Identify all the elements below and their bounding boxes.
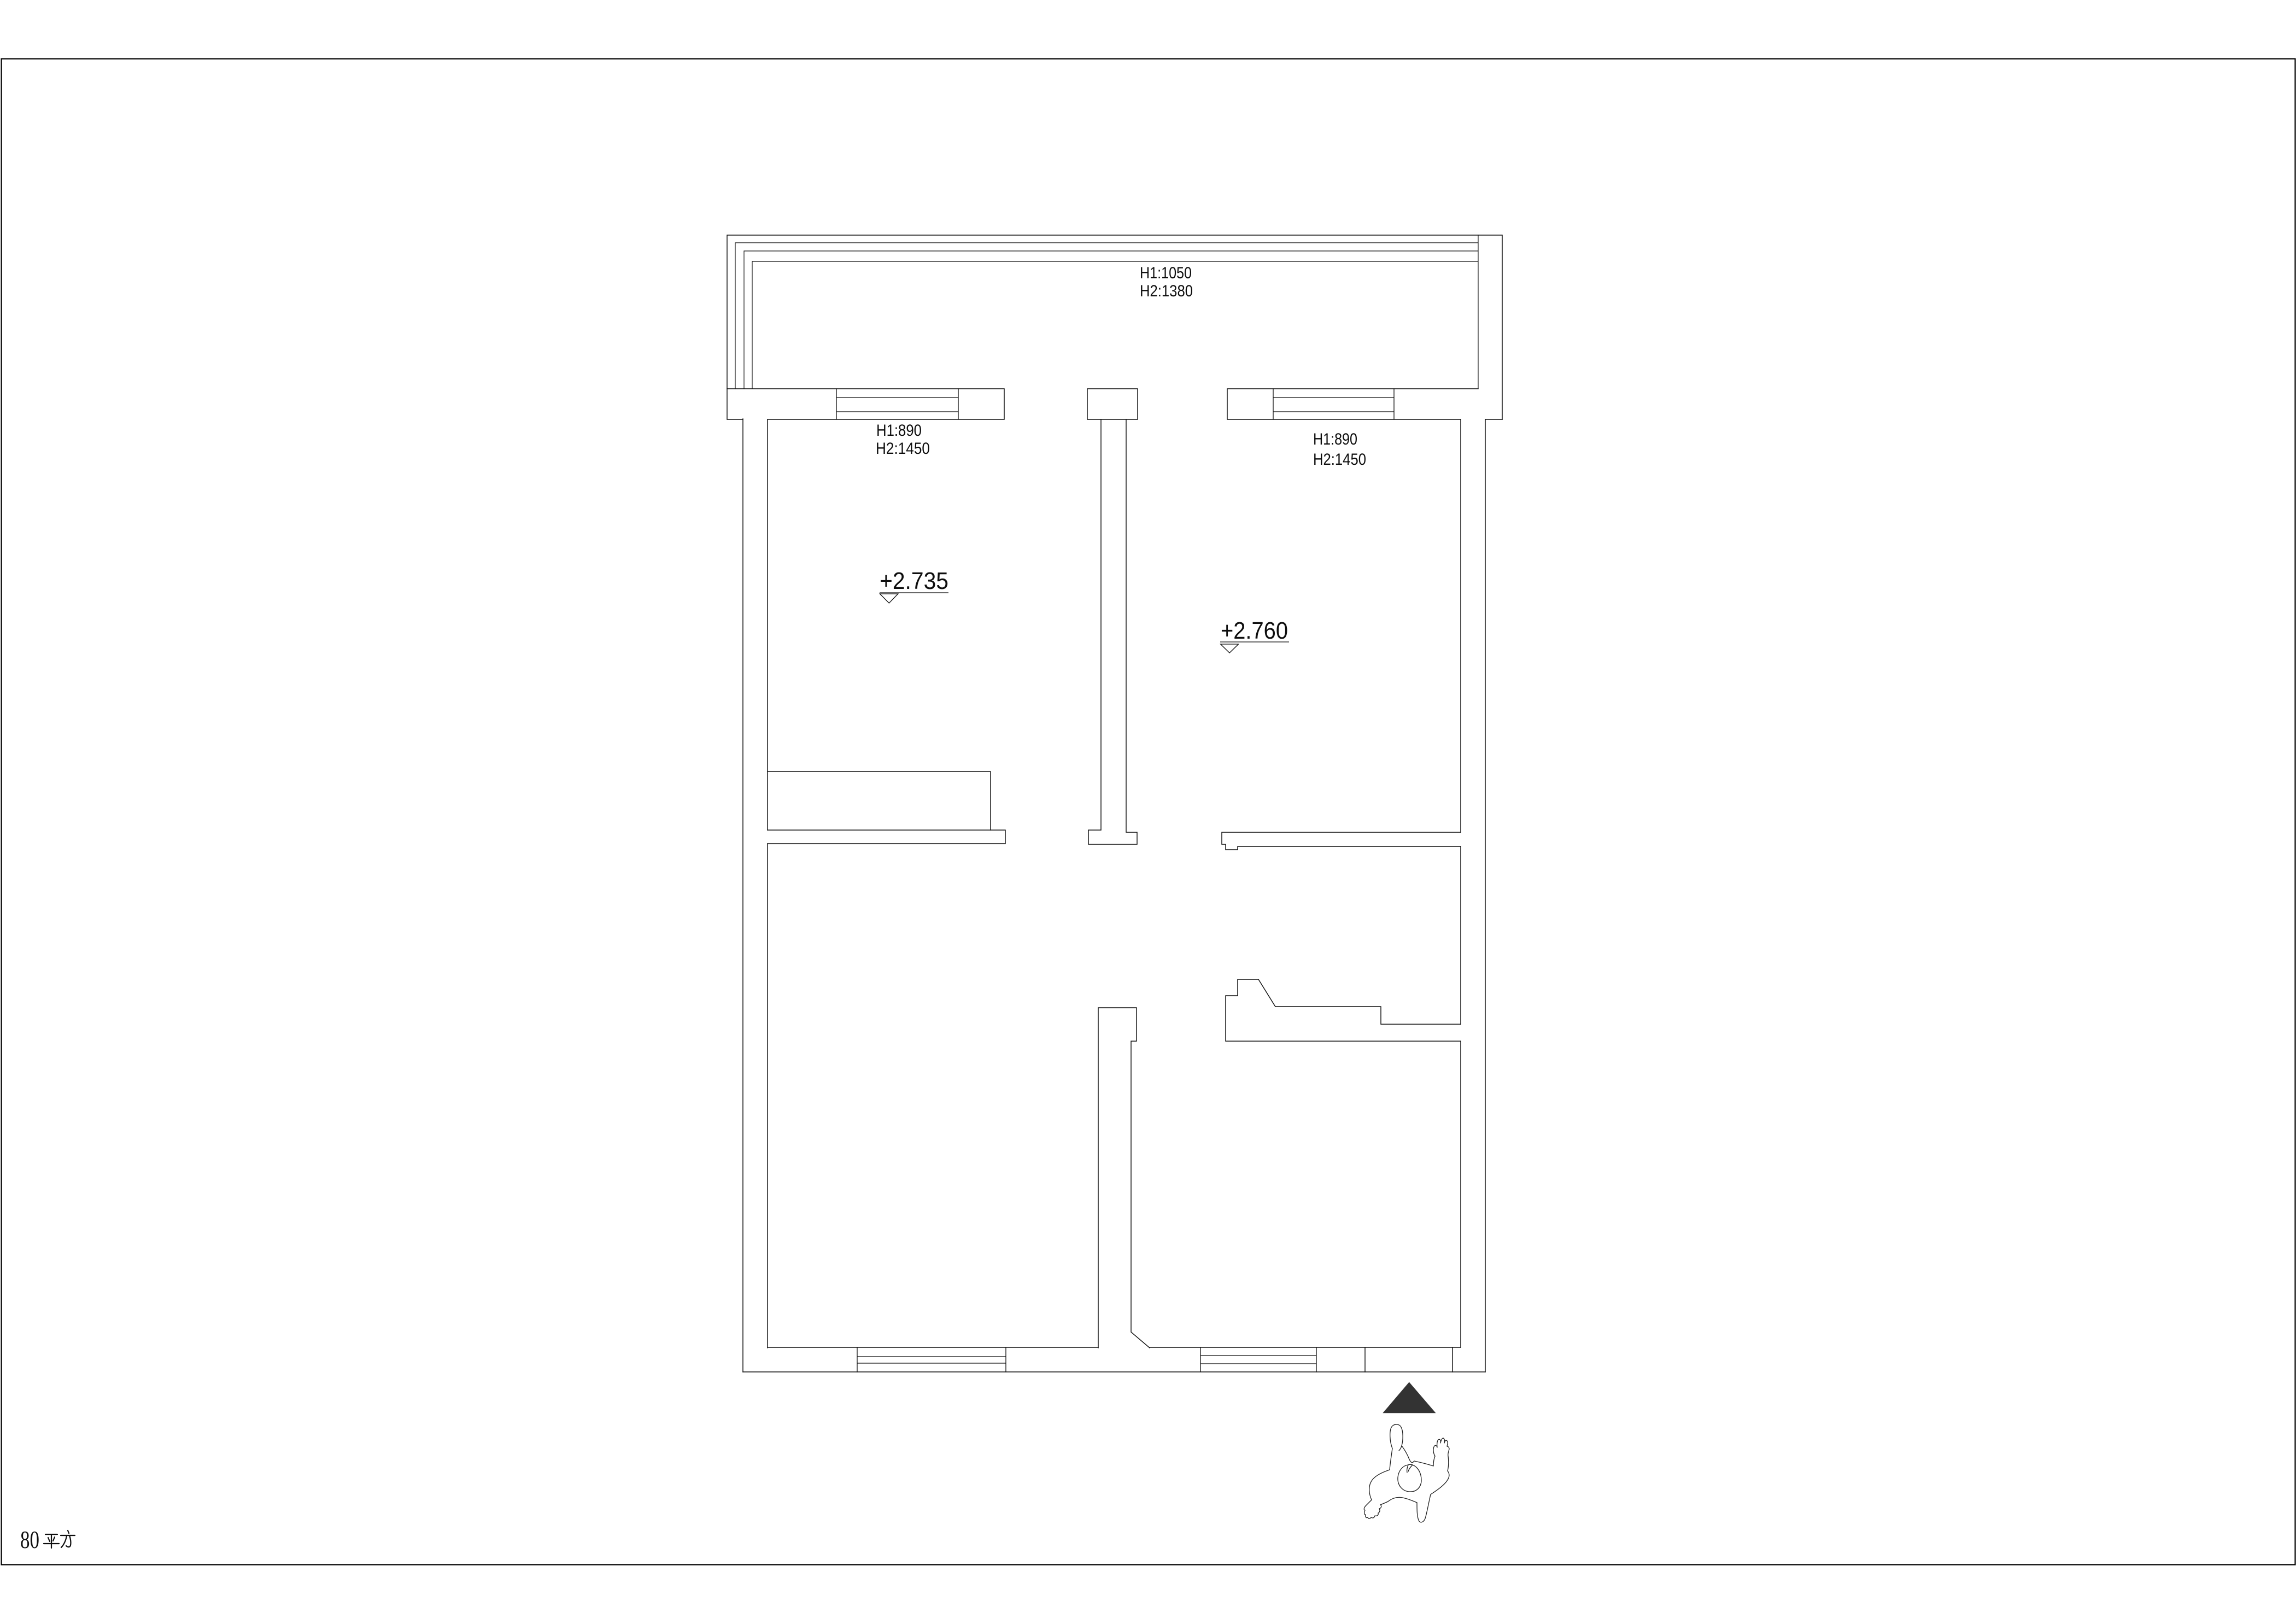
svg-text:H2:1380: H2:1380 — [1140, 282, 1193, 300]
svg-text:+2.760: +2.760 — [1221, 617, 1288, 644]
svg-text:H1:1050: H1:1050 — [1140, 264, 1192, 282]
svg-text:80: 80 — [20, 1526, 39, 1553]
svg-text:H1:890: H1:890 — [1313, 430, 1357, 448]
svg-text:H1:890: H1:890 — [876, 422, 922, 440]
svg-text:H2:1450: H2:1450 — [1313, 451, 1366, 469]
svg-text:+2.735: +2.735 — [880, 568, 948, 594]
svg-text:H2:1450: H2:1450 — [876, 440, 930, 458]
